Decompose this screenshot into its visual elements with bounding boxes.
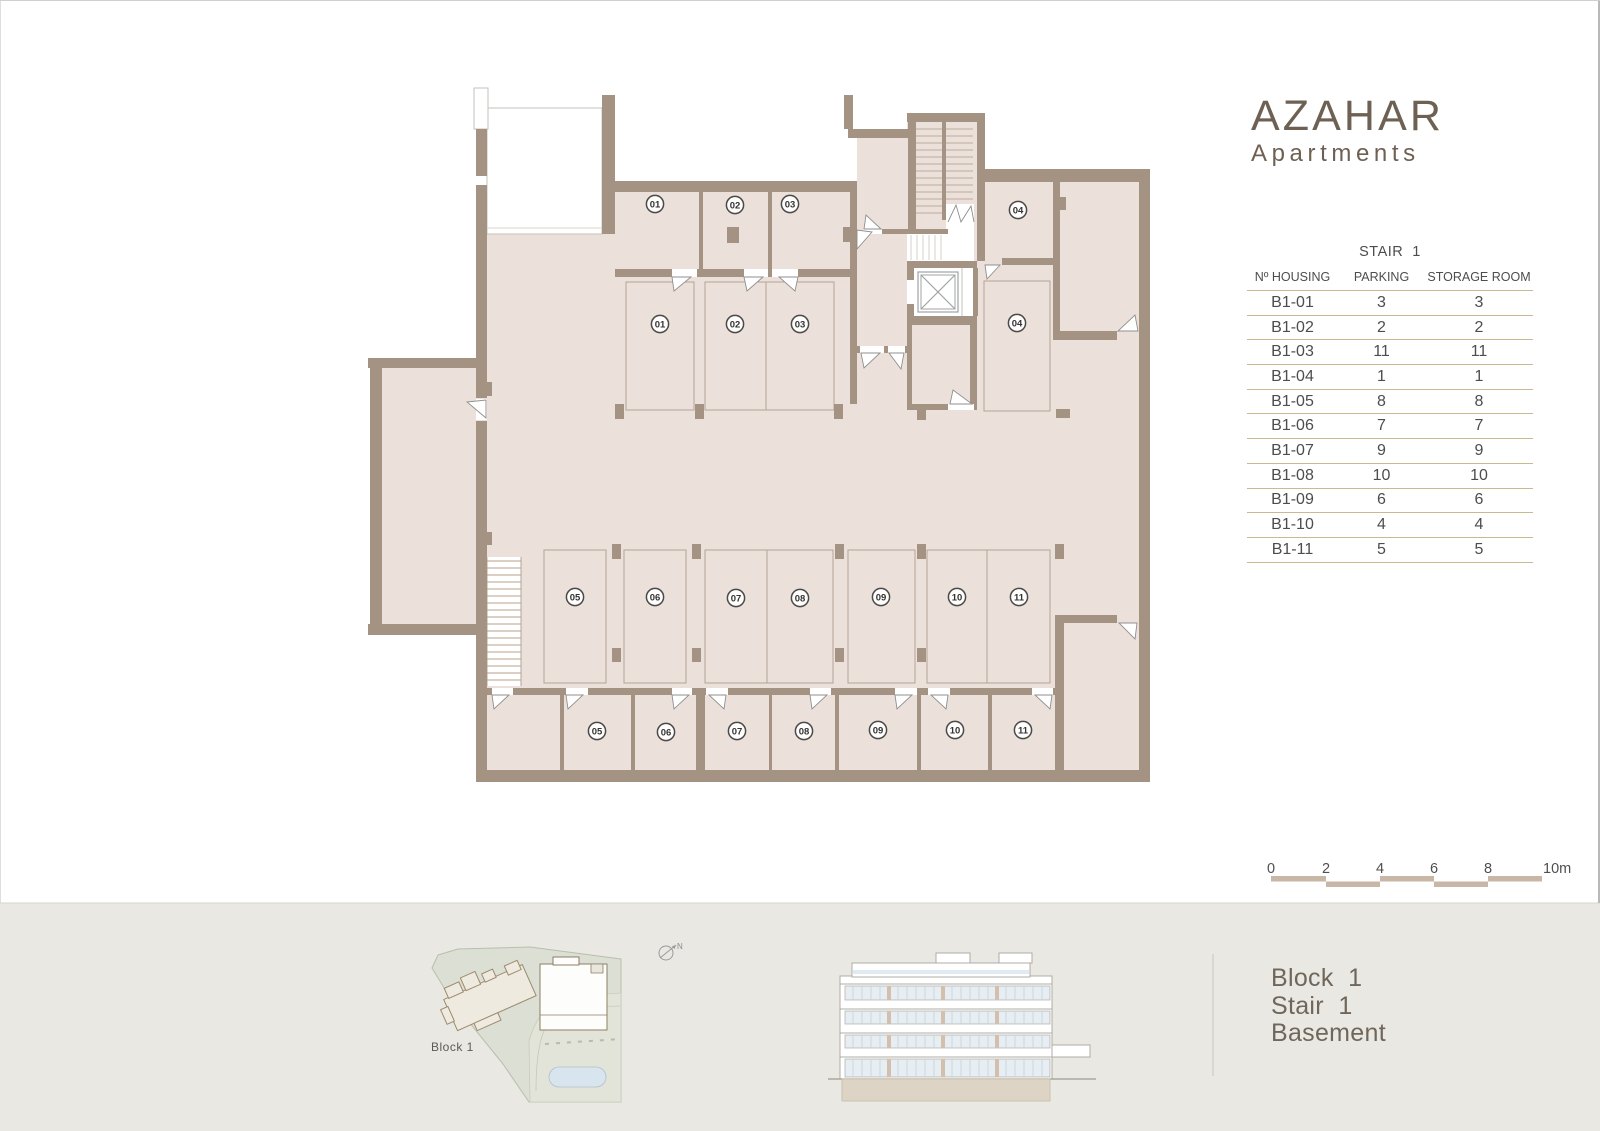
svg-text:08: 08: [795, 593, 806, 604]
svg-text:6: 6: [1430, 861, 1438, 877]
svg-text:02: 02: [730, 200, 741, 211]
svg-text:8: 8: [1484, 861, 1492, 877]
svg-text:07: 07: [731, 593, 742, 604]
svg-text:02: 02: [730, 319, 741, 330]
svg-text:05: 05: [592, 726, 603, 737]
svg-text:07: 07: [732, 726, 743, 737]
svg-text:10: 10: [950, 725, 961, 736]
svg-text:08: 08: [799, 726, 810, 737]
svg-text:2: 2: [1322, 861, 1330, 877]
svg-text:03: 03: [785, 199, 796, 210]
svg-text:4: 4: [1376, 861, 1384, 877]
svg-text:04: 04: [1012, 318, 1023, 329]
svg-text:10m: 10m: [1543, 861, 1571, 877]
svg-text:09: 09: [876, 592, 887, 603]
svg-text:10: 10: [952, 592, 963, 603]
svg-text:Block 1: Block 1: [431, 1040, 474, 1054]
svg-text:01: 01: [655, 319, 666, 330]
svg-text:01: 01: [650, 199, 661, 210]
svg-text:N: N: [677, 942, 683, 951]
svg-text:05: 05: [570, 592, 581, 603]
svg-text:06: 06: [661, 727, 672, 738]
svg-text:0: 0: [1267, 861, 1275, 877]
svg-text:03: 03: [795, 319, 806, 330]
svg-text:06: 06: [650, 592, 661, 603]
svg-text:09: 09: [873, 725, 884, 736]
svg-text:11: 11: [1014, 592, 1025, 603]
svg-text:11: 11: [1018, 725, 1029, 736]
svg-text:04: 04: [1013, 205, 1024, 216]
